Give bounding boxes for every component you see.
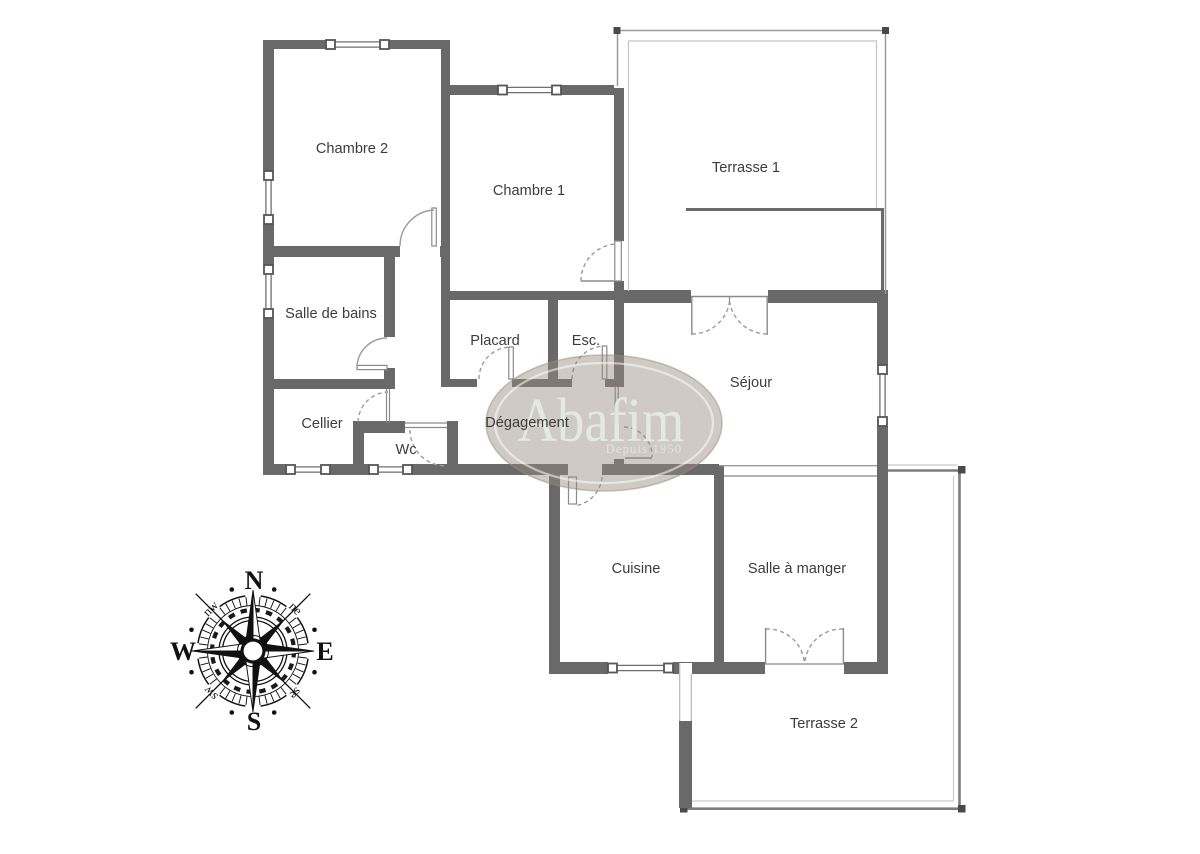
svg-text:Wc: Wc xyxy=(395,442,416,458)
svg-text:Terrasse 1: Terrasse 1 xyxy=(712,160,780,176)
svg-text:Cuisine: Cuisine xyxy=(612,561,661,577)
svg-text:Cellier: Cellier xyxy=(301,416,342,432)
svg-text:Chambre 1: Chambre 1 xyxy=(493,183,565,199)
svg-text:N: N xyxy=(245,566,264,595)
svg-text:E: E xyxy=(316,637,333,666)
svg-text:Séjour: Séjour xyxy=(730,375,772,391)
svg-text:Dégagement: Dégagement xyxy=(485,415,569,431)
svg-text:Terrasse 2: Terrasse 2 xyxy=(790,716,858,732)
svg-text:Depuis 1950: Depuis 1950 xyxy=(606,442,683,456)
svg-text:Esc.: Esc. xyxy=(572,333,600,349)
svg-text:Salle à manger: Salle à manger xyxy=(748,561,846,577)
svg-text:Salle de bains: Salle de bains xyxy=(285,306,377,322)
svg-text:Chambre 2: Chambre 2 xyxy=(316,141,388,157)
svg-text:S: S xyxy=(247,707,261,736)
svg-text:W: W xyxy=(170,637,196,666)
svg-text:Placard: Placard xyxy=(470,333,519,349)
